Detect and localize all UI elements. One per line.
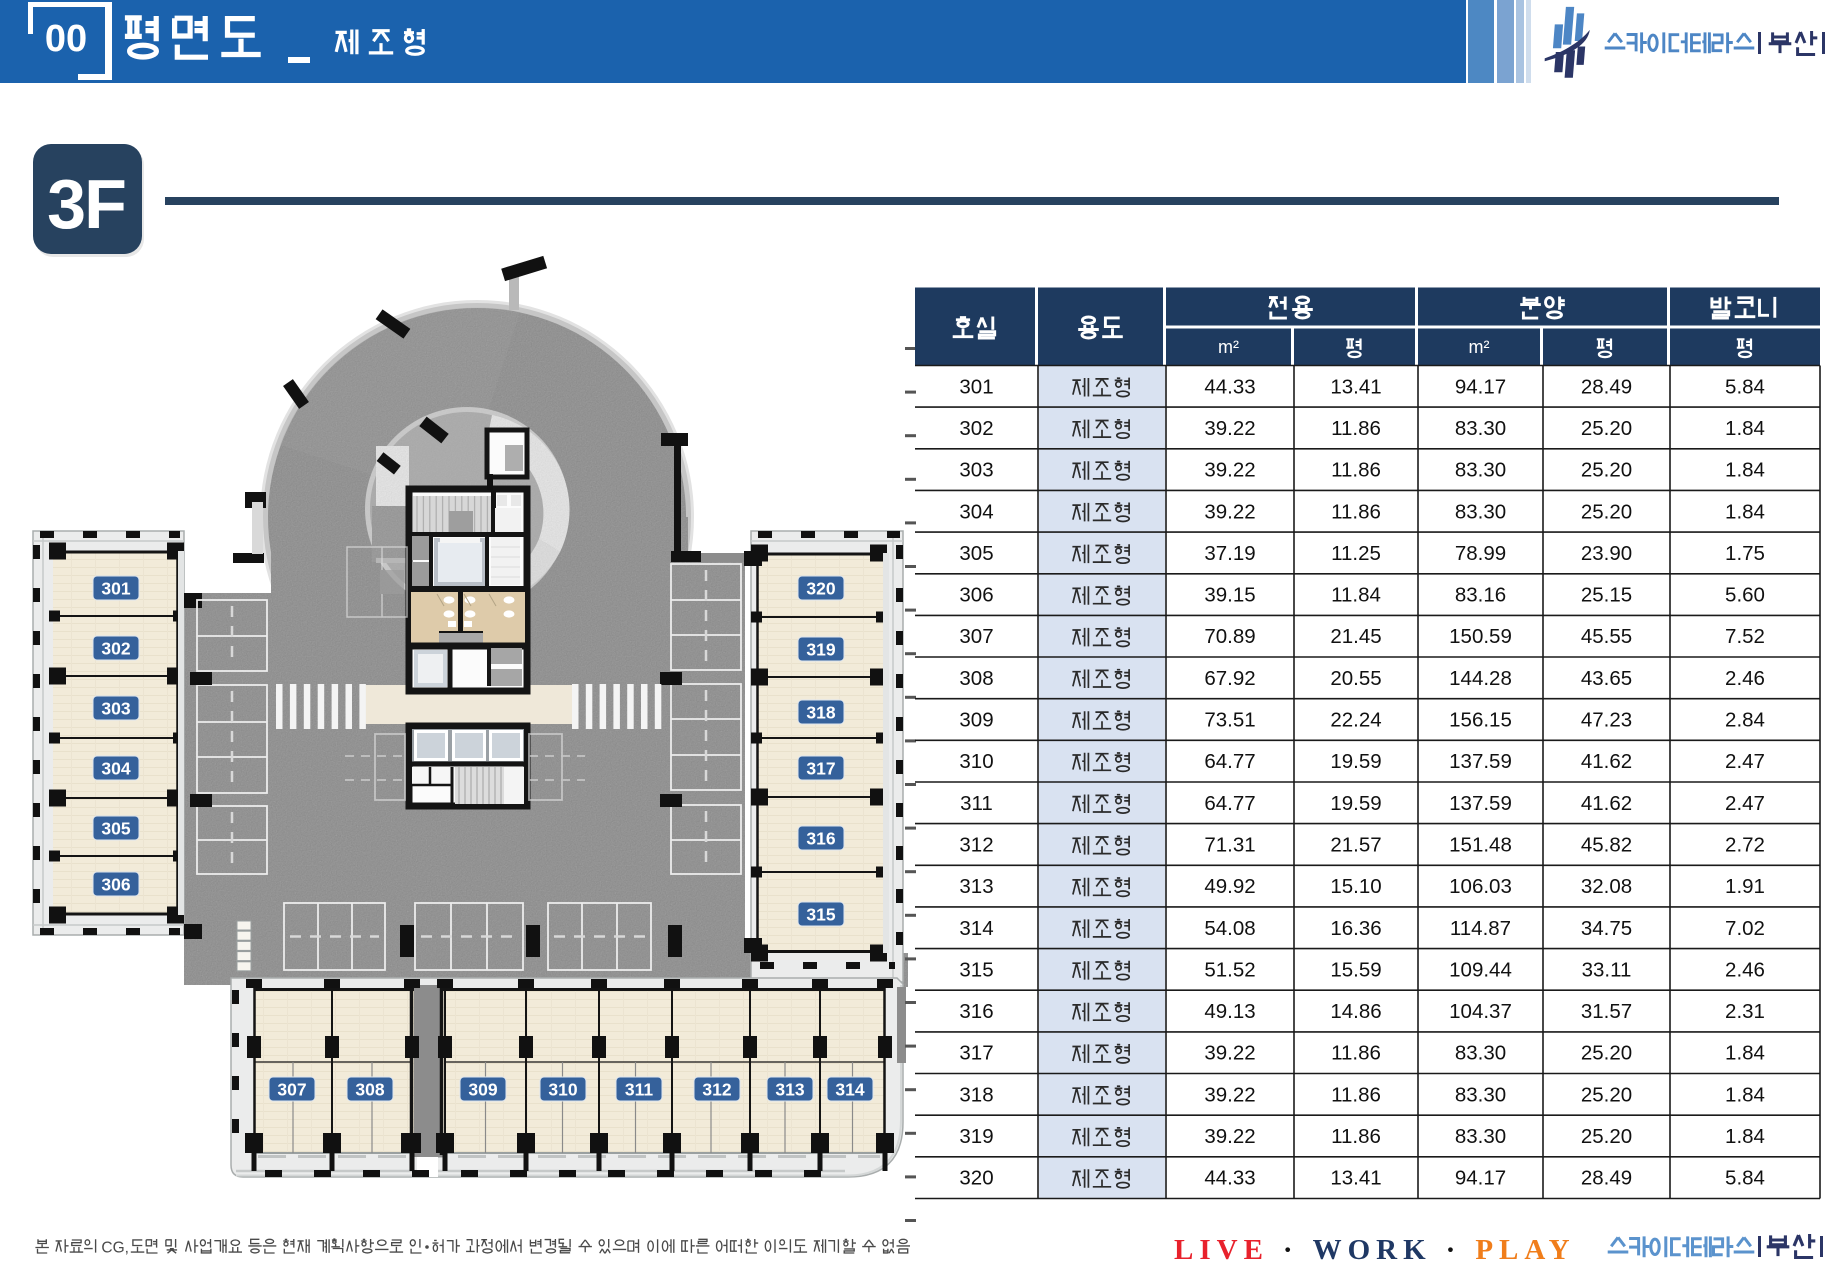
svg-text:LIVE·WORK·PLAY: LIVE·WORK·PLAY [1174, 1234, 1576, 1265]
svg-text:CG,: CG, [101, 1240, 129, 1257]
